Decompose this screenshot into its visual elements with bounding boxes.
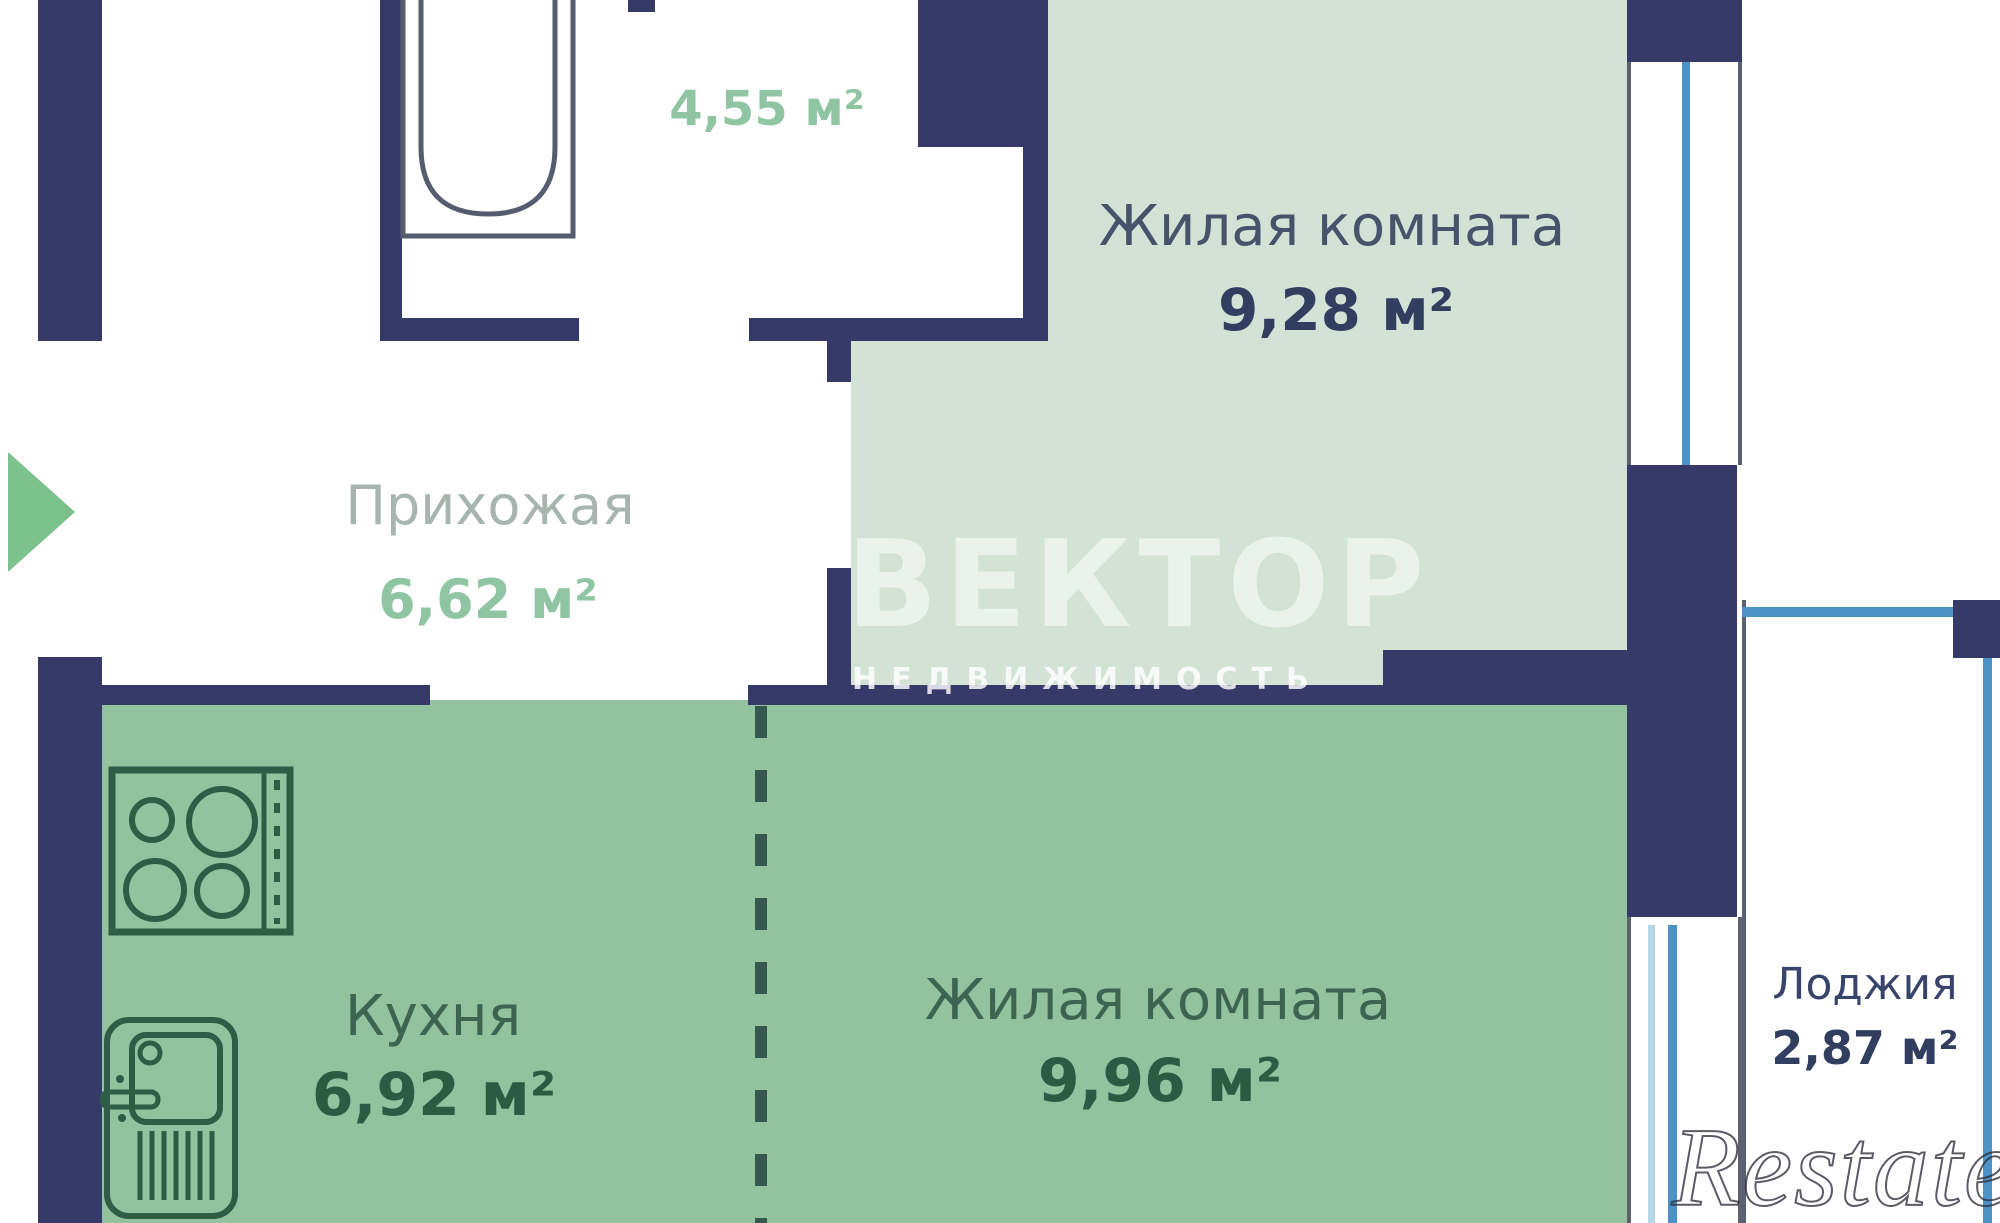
window-bottom-frame-left — [1627, 917, 1631, 1223]
vektor-brand-watermark: ВЕКТОР — [846, 516, 1431, 655]
bathtub-icon — [395, 0, 585, 248]
wall-top-stub — [628, 0, 655, 12]
wall-loggia-corner — [1953, 600, 2000, 658]
wall-right-pier — [1627, 465, 1737, 917]
room-living-1-area: 9,28 м² — [1036, 280, 1636, 341]
room-hallway-area: 6,62 м² — [238, 572, 738, 629]
window-top-frame-left — [1627, 62, 1631, 465]
room-hallway-name: Прихожая — [240, 478, 740, 535]
room-bathroom-area: 4,55 м² — [617, 84, 917, 134]
vektor-brand-sub-watermark: НЕДВИЖИМОСТЬ — [852, 662, 1323, 697]
loggia-glass-top — [1742, 607, 1953, 617]
entrance-arrow-icon — [8, 452, 75, 572]
room-loggia-area: 2,87 м² — [1747, 1024, 1983, 1072]
kitchen-divider-dashed-line — [755, 706, 767, 1223]
room-living-2-name: Жилая комната — [908, 972, 1408, 1031]
wall-hall-stub-upper — [827, 341, 851, 382]
wall-left-lower — [38, 657, 102, 1223]
stove-icon — [108, 766, 294, 936]
room-loggia-name: Лоджия — [1747, 962, 1983, 1008]
window-top-glass — [1682, 62, 1690, 465]
room-living-2-area: 9,96 м² — [910, 1050, 1410, 1113]
window-bottom-glass-inner — [1648, 925, 1655, 1223]
room-living-1-name: Жилая комната — [1032, 198, 1632, 257]
room-kitchen-area: 6,92 м² — [184, 1064, 684, 1127]
restate-watermark: Restate — [1672, 1104, 2000, 1223]
wall-kitchen-top — [38, 685, 430, 705]
wall-mid-thick — [1383, 650, 1627, 705]
room-kitchen-name: Кухня — [183, 988, 683, 1047]
wall-bathroom-bottom-right — [749, 318, 1048, 341]
room-kitchen-living-2-floor — [102, 700, 1627, 1223]
window-top-frame-right — [1738, 62, 1742, 465]
wall-bathroom-bottom-left — [380, 318, 579, 341]
wall-left-upper — [38, 0, 102, 341]
floor-plan: 4,55 м² Прихожая 6,62 м² Жилая комната 9… — [0, 0, 2000, 1223]
wall-window-cap-top — [1627, 0, 1742, 62]
